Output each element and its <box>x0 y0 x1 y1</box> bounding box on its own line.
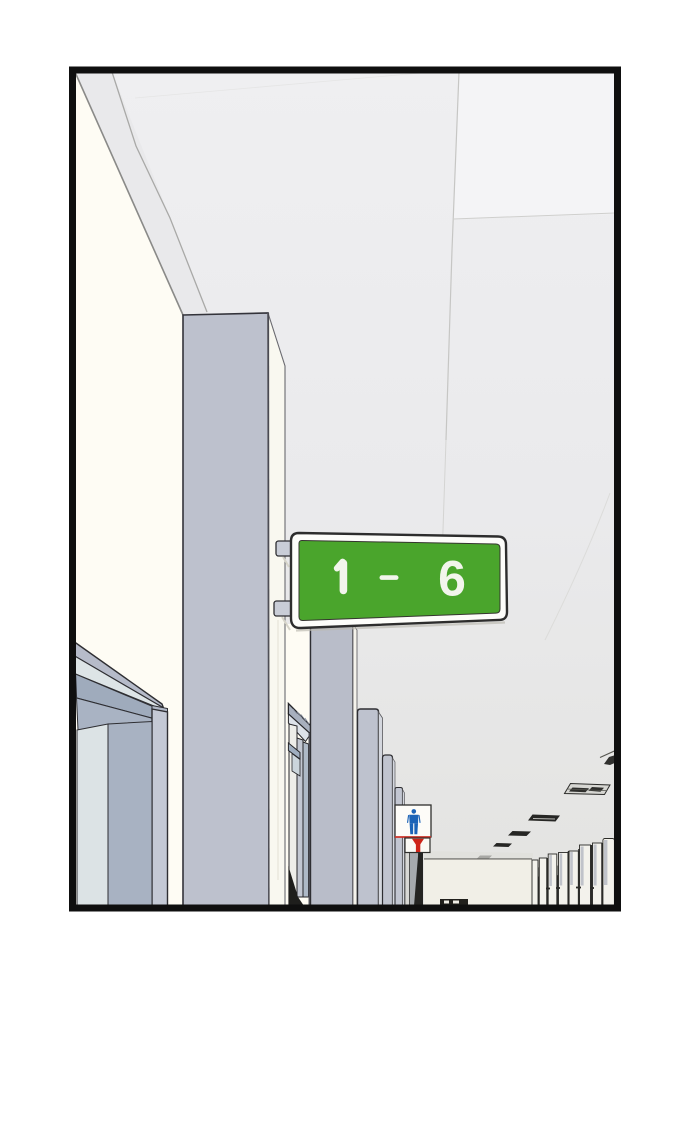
svg-text:6: 6 <box>438 551 466 607</box>
